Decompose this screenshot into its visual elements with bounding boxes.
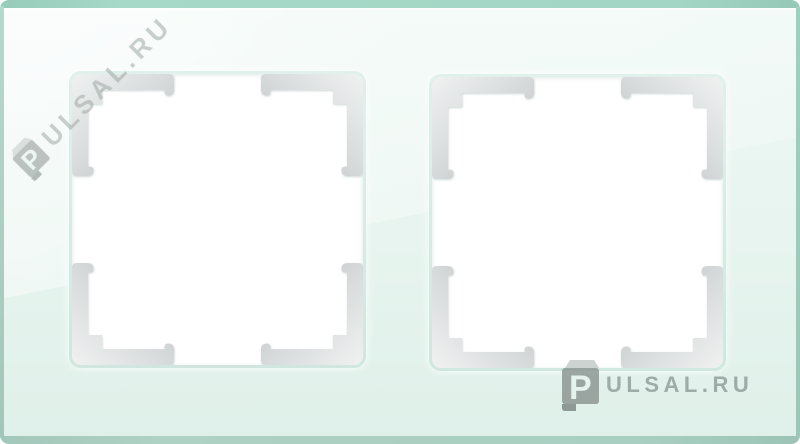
- watermark-text: ULSAL.RU: [606, 372, 753, 398]
- glass-right-edge: [796, 6, 800, 438]
- corner-clips-left: [72, 74, 363, 365]
- aperture-left: [69, 71, 366, 368]
- logo-letter: P: [569, 369, 592, 407]
- glass-top-highlight-line: [2, 8, 798, 10]
- pulsal-logo-icon: P: [561, 359, 601, 411]
- product-photo-double-glass-frame: { "product": { "type": "double socket gl…: [0, 0, 800, 444]
- glass-left-edge: [0, 6, 4, 438]
- watermark-bottom-right: P ULSAL.RU: [561, 358, 753, 412]
- aperture-left-window: [72, 74, 363, 365]
- glass-bottom-edge: [0, 436, 800, 444]
- aperture-right: [429, 74, 726, 371]
- aperture-right-window: [432, 77, 723, 368]
- corner-clips-right: [432, 77, 723, 368]
- glass-top-edge: [0, 0, 800, 8]
